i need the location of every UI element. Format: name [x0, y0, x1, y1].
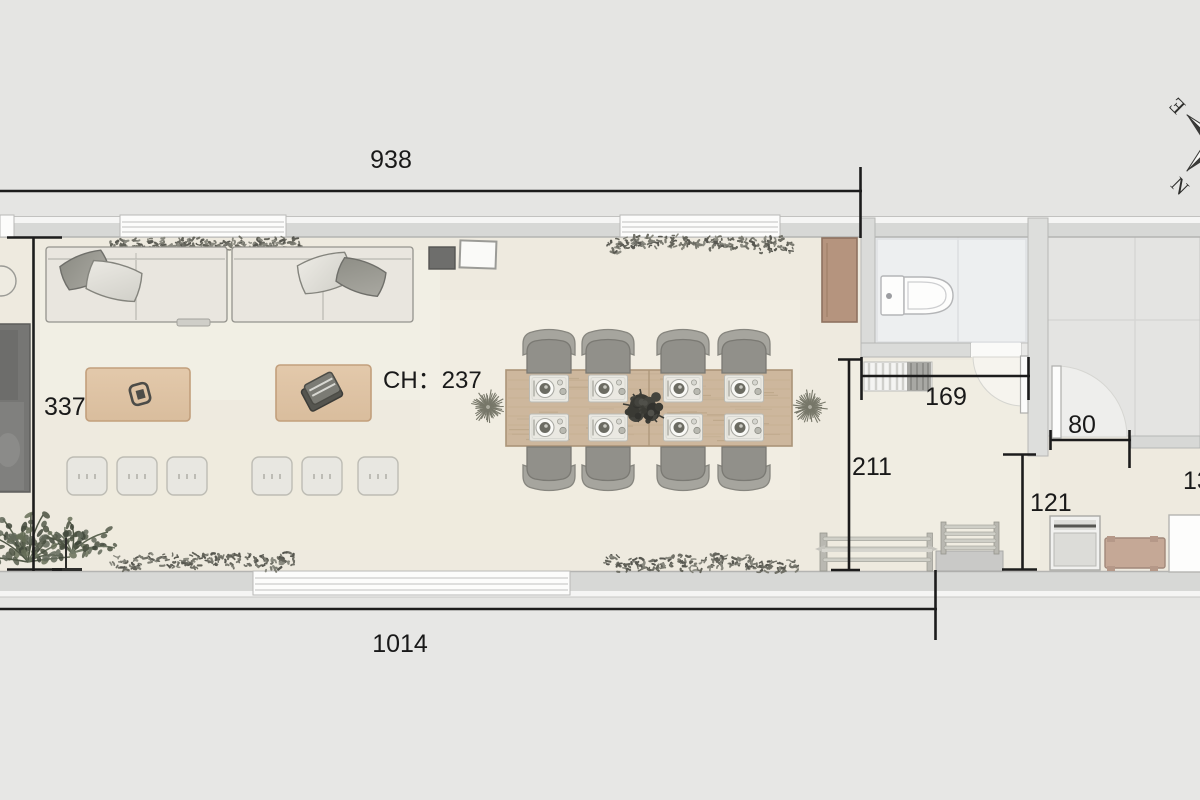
svg-text:169: 169: [925, 383, 967, 411]
svg-text:CH：237: CH：237: [383, 367, 482, 394]
svg-text:938: 938: [370, 146, 412, 174]
svg-text:1014: 1014: [372, 630, 428, 658]
svg-text:130: 130: [1183, 467, 1200, 495]
svg-text:80: 80: [1068, 411, 1096, 439]
svg-text:337: 337: [44, 393, 86, 421]
svg-text:121: 121: [1030, 489, 1072, 517]
svg-text:211: 211: [852, 453, 892, 481]
